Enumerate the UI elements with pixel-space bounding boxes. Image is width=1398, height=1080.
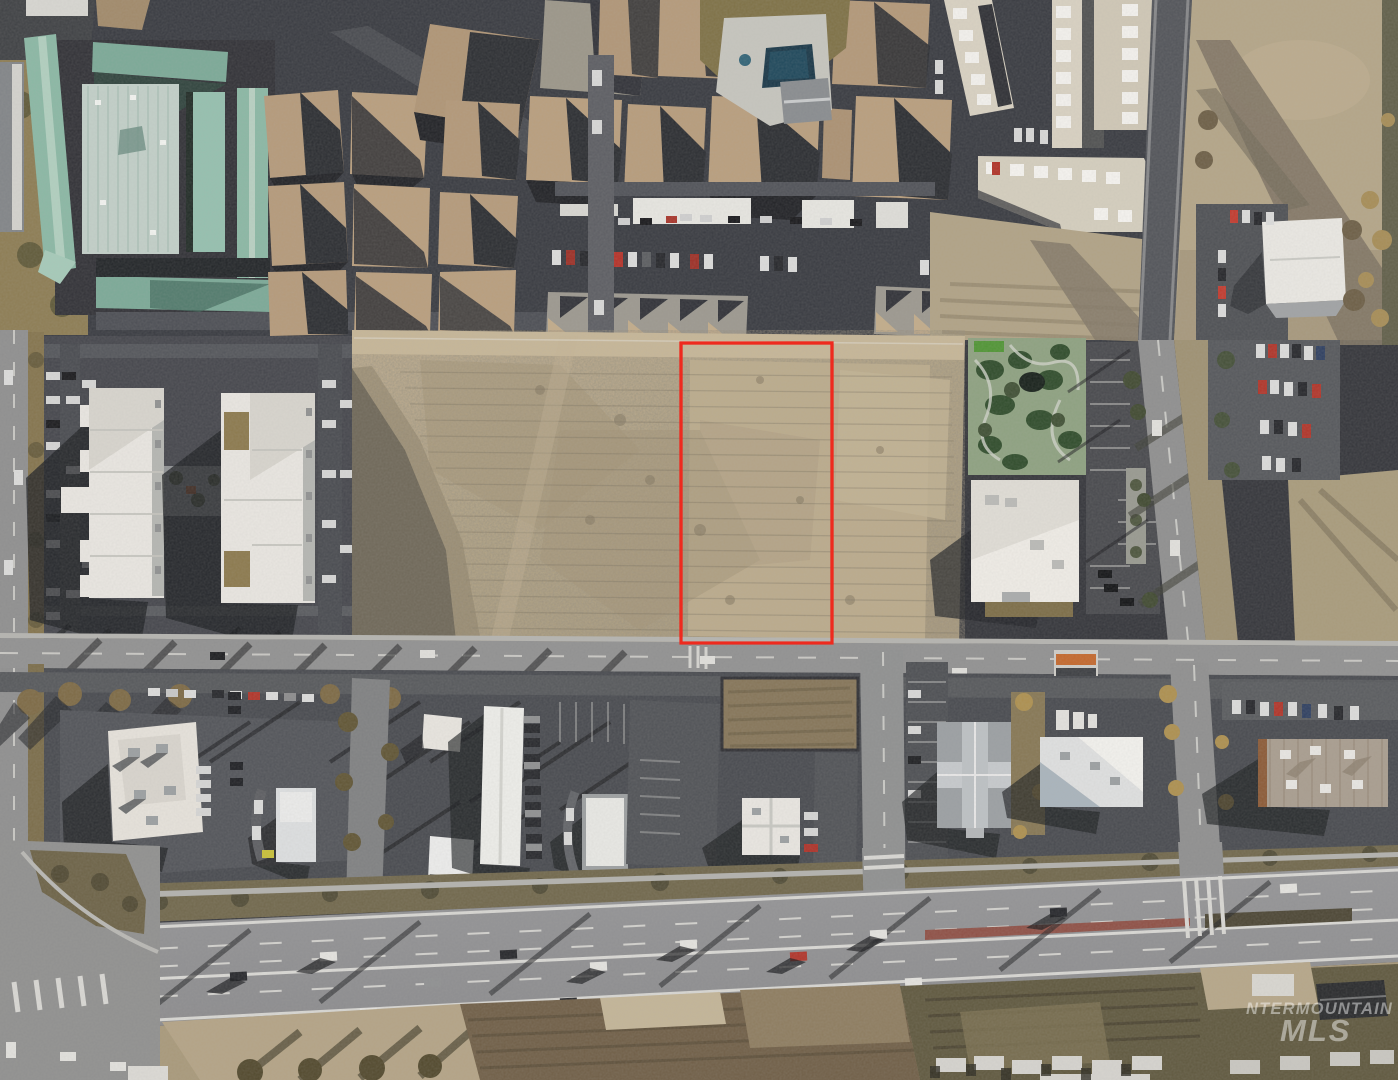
svg-text:MLS: MLS	[1280, 1013, 1351, 1048]
